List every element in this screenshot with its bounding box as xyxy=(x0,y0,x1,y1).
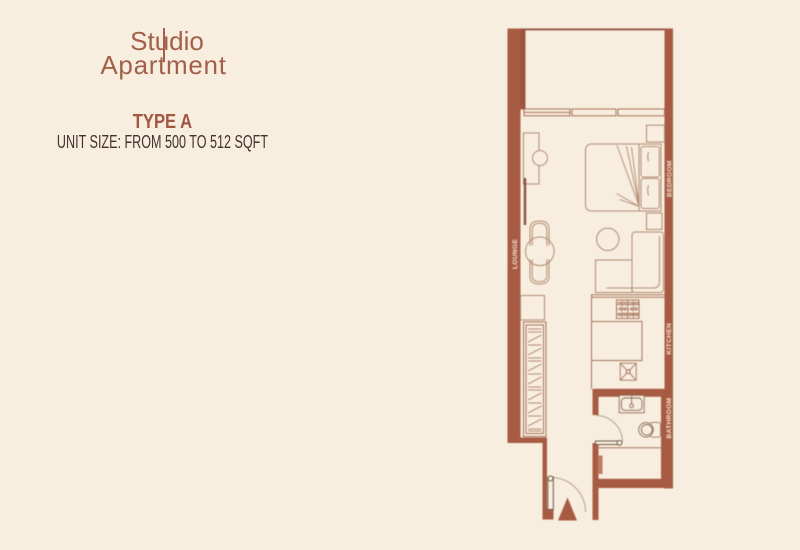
svg-text:LOUNGE: LOUNGE xyxy=(512,239,519,269)
svg-text:BEDROOM: BEDROOM xyxy=(667,160,674,197)
svg-text:BATHROOM: BATHROOM xyxy=(666,398,673,439)
svg-text:KITCHEN: KITCHEN xyxy=(666,323,673,355)
